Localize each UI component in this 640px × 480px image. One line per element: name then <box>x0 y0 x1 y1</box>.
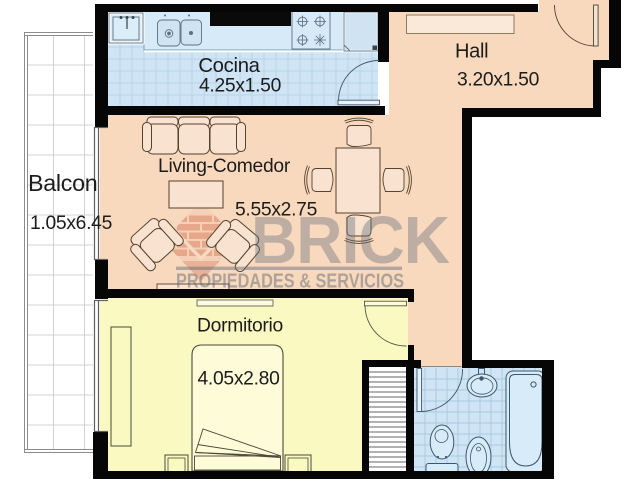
svg-text:Living-Comedor: Living-Comedor <box>158 156 291 177</box>
svg-text:PROPIEDADES & SERVICIOS: PROPIEDADES & SERVICIOS <box>176 271 404 293</box>
svg-text:4.05x2.80: 4.05x2.80 <box>198 369 280 390</box>
svg-text:Balcon: Balcon <box>28 170 97 196</box>
svg-text:1.05x6.45: 1.05x6.45 <box>30 213 112 234</box>
svg-text:3.20x1.50: 3.20x1.50 <box>457 70 539 91</box>
svg-text:Hall: Hall <box>455 41 488 63</box>
svg-text:Cocina: Cocina <box>198 55 260 77</box>
svg-text:Dormitorio: Dormitorio <box>197 316 283 337</box>
svg-text:4.25x1.50: 4.25x1.50 <box>199 76 281 97</box>
